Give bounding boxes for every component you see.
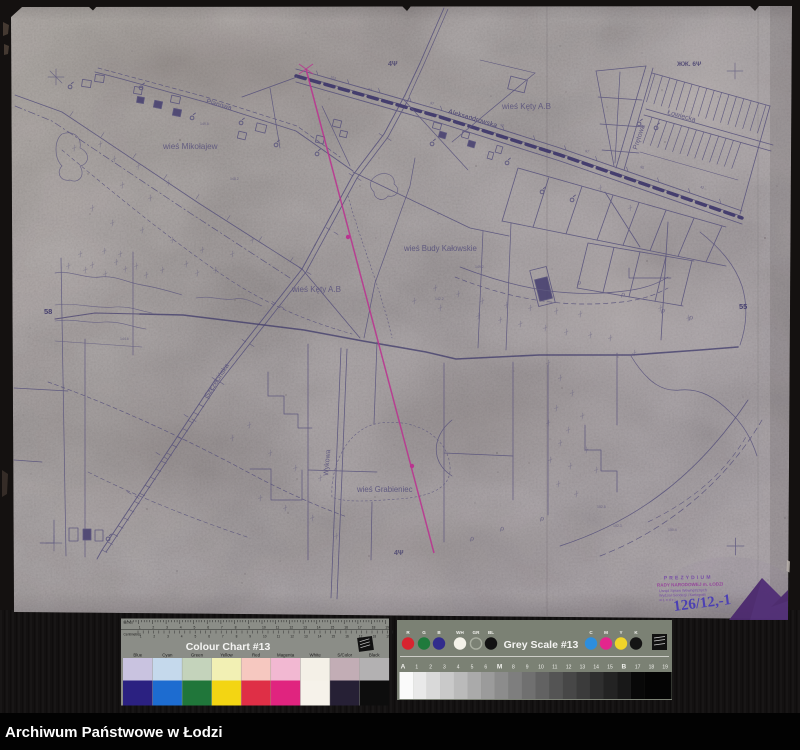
- svg-text:wieś Kęty A.B: wieś Kęty A.B: [291, 285, 341, 294]
- svg-text:6: 6: [484, 665, 487, 671]
- svg-text:15: 15: [331, 625, 335, 629]
- svg-text:1: 1: [139, 625, 141, 629]
- svg-text:1: 1: [415, 665, 418, 671]
- svg-text:A: A: [401, 664, 406, 671]
- svg-text:3: 3: [443, 665, 446, 671]
- svg-text:18: 18: [373, 635, 377, 639]
- svg-text:ЖЖ. 6Ψ: ЖЖ. 6Ψ: [676, 61, 701, 68]
- svg-text:5: 5: [194, 625, 196, 629]
- svg-text:4: 4: [181, 635, 183, 639]
- svg-text:13: 13: [580, 665, 586, 671]
- svg-text:M: M: [497, 664, 502, 671]
- svg-text:Red: Red: [252, 653, 261, 658]
- svg-text:152.3: 152.3: [613, 524, 622, 528]
- svg-text:Colour Chart #13: Colour Chart #13: [186, 641, 271, 653]
- svg-text:4Ψ: 4Ψ: [388, 61, 398, 68]
- svg-text:150.4: 150.4: [668, 528, 677, 532]
- svg-text:13: 13: [303, 625, 307, 629]
- svg-text:11: 11: [552, 665, 557, 671]
- svg-text:4Ψ: 4Ψ: [394, 550, 404, 557]
- svg-text:2: 2: [429, 665, 432, 671]
- svg-text:16: 16: [344, 625, 348, 629]
- svg-text:5: 5: [195, 635, 197, 639]
- svg-text:144.6: 144.6: [120, 337, 129, 341]
- svg-text:16: 16: [345, 635, 349, 639]
- svg-text:10: 10: [538, 665, 544, 671]
- svg-text:149.2: 149.2: [475, 265, 484, 269]
- svg-text:Inches: Inches: [124, 621, 134, 625]
- svg-text:11: 11: [276, 625, 280, 629]
- svg-text:12: 12: [289, 625, 293, 629]
- svg-text:Black: Black: [369, 653, 381, 658]
- svg-text:GR: GR: [473, 630, 481, 635]
- svg-text:142.2: 142.2: [435, 297, 444, 301]
- svg-text:17: 17: [635, 665, 641, 671]
- svg-text:152.8: 152.8: [597, 505, 606, 509]
- svg-text:19: 19: [385, 625, 389, 629]
- svg-text:Magenta: Magenta: [277, 653, 295, 658]
- svg-text:15: 15: [607, 665, 613, 671]
- svg-text:Grey Scale #13: Grey Scale #13: [504, 639, 579, 651]
- svg-text:6: 6: [207, 625, 209, 629]
- svg-text:wieś Kęty A.B: wieś Kęty A.B: [501, 102, 551, 111]
- svg-text:17: 17: [358, 625, 362, 629]
- svg-text:12: 12: [566, 665, 572, 671]
- svg-text:WH: WH: [456, 630, 464, 635]
- svg-text:Green: Green: [191, 653, 204, 658]
- svg-text:19: 19: [662, 665, 668, 671]
- svg-text:3: 3: [166, 625, 168, 629]
- svg-text:S/Color: S/Color: [337, 653, 352, 658]
- svg-text:8: 8: [236, 635, 238, 639]
- svg-text:55: 55: [739, 302, 747, 311]
- svg-text:19: 19: [386, 635, 390, 639]
- svg-text:4: 4: [457, 665, 460, 671]
- svg-text:10: 10: [263, 635, 267, 639]
- svg-text:148.2: 148.2: [230, 177, 239, 181]
- svg-text:2: 2: [152, 625, 154, 629]
- svg-text:149.8: 149.8: [200, 122, 209, 126]
- svg-text:18: 18: [649, 665, 655, 671]
- svg-text:11: 11: [277, 635, 281, 639]
- svg-text:wieś Budy Kałowskie: wieś Budy Kałowskie: [403, 244, 477, 253]
- svg-text:14: 14: [318, 635, 322, 639]
- svg-text:M: M: [604, 630, 608, 635]
- svg-text:14: 14: [593, 665, 599, 671]
- svg-text:7: 7: [221, 625, 223, 629]
- svg-text:1: 1: [140, 635, 142, 639]
- svg-text:8: 8: [235, 625, 237, 629]
- svg-text:5: 5: [471, 665, 474, 671]
- svg-text:8: 8: [512, 665, 515, 671]
- svg-text:wieś Mikołajew: wieś Mikołajew: [162, 142, 218, 151]
- svg-text:18: 18: [372, 625, 376, 629]
- svg-text:White: White: [310, 653, 322, 658]
- svg-text:14: 14: [317, 625, 321, 629]
- svg-text:9: 9: [248, 625, 250, 629]
- svg-text:3: 3: [167, 635, 169, 639]
- svg-text:Cyan: Cyan: [162, 653, 173, 658]
- svg-text:58: 58: [44, 307, 52, 316]
- svg-text:G: G: [422, 630, 426, 635]
- svg-text:Centimetres: Centimetres: [124, 633, 142, 637]
- svg-text:6: 6: [208, 635, 210, 639]
- svg-text:Archiwum Państwowe w Łodzi: Archiwum Państwowe w Łodzi: [5, 724, 223, 741]
- svg-text:wieś Grabieniec: wieś Grabieniec: [356, 485, 413, 494]
- svg-text:4: 4: [180, 625, 182, 629]
- svg-text:15: 15: [332, 635, 336, 639]
- svg-text:Y: Y: [619, 630, 622, 635]
- svg-text:7: 7: [222, 635, 224, 639]
- svg-text:2: 2: [153, 635, 155, 639]
- svg-text:13: 13: [304, 635, 308, 639]
- svg-text:10: 10: [262, 625, 266, 629]
- svg-text:BL: BL: [488, 630, 494, 635]
- svg-text:9: 9: [249, 635, 251, 639]
- svg-text:Blue: Blue: [133, 653, 142, 658]
- svg-text:B: B: [621, 664, 626, 671]
- svg-text:Yellow: Yellow: [220, 653, 233, 658]
- svg-text:12: 12: [290, 635, 294, 639]
- svg-text:9: 9: [526, 665, 529, 671]
